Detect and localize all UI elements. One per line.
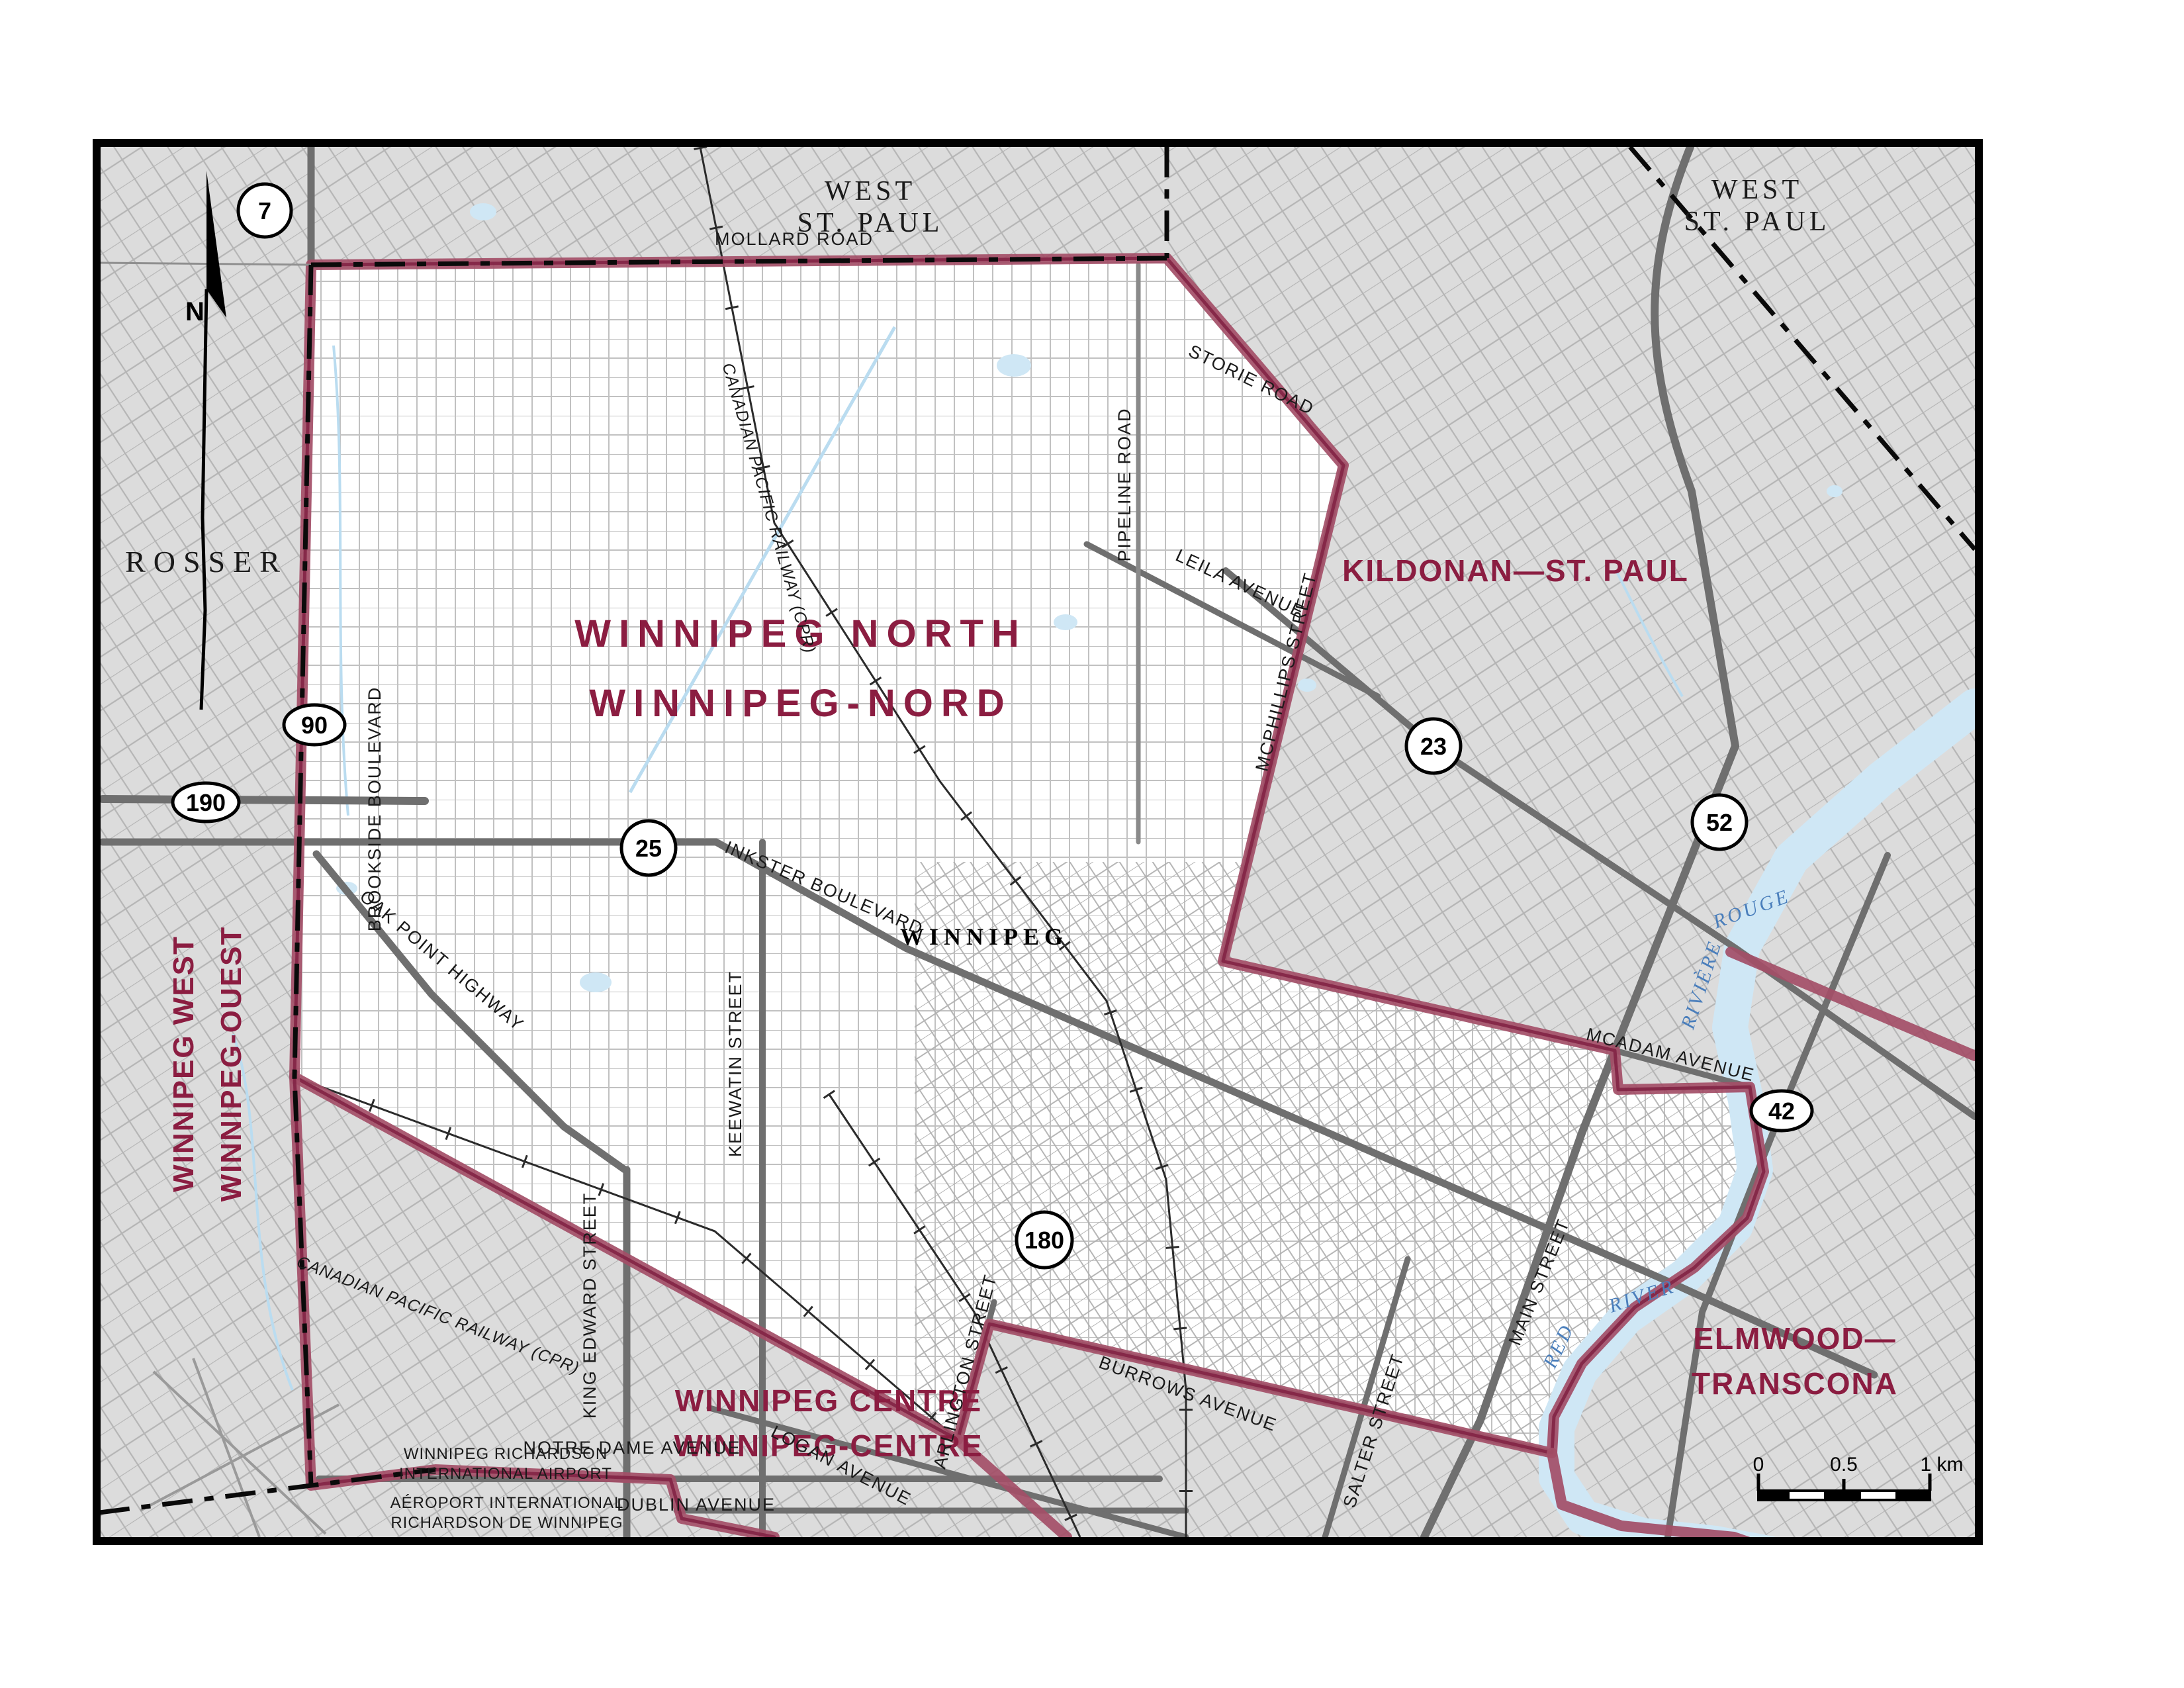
label-dublin-avenue: DUBLIN AVENUE [617, 1495, 776, 1515]
label-airport-en-1: WINNIPEG RICHARDSON [404, 1445, 608, 1463]
highway-shield-190: 190 [173, 783, 239, 821]
label-airport-fr-1: AÉROPORT INTERNATIONAL [390, 1494, 624, 1512]
map-canvas: WINNIPEG NORTH WINNIPEG-NORD WEST ST. PA… [101, 147, 1975, 1537]
scale-label-1km: 1 km [1920, 1454, 1963, 1476]
pond [1298, 679, 1316, 692]
shield-42-number: 42 [1768, 1098, 1795, 1125]
pond [1054, 614, 1077, 630]
highway-shield-23: 23 [1406, 719, 1461, 773]
highway-shield-25: 25 [621, 821, 676, 875]
scale-bar-body [1757, 1489, 1931, 1501]
pond [1827, 485, 1843, 497]
label-pipeline-road: PIPELINE ROAD [1115, 407, 1134, 561]
label-airport-en-2: INTERNATIONAL AIRPORT [399, 1465, 612, 1483]
highway-shield-42: 42 [1751, 1091, 1812, 1131]
highway-shield-52: 52 [1692, 795, 1747, 849]
shield-190-number: 190 [186, 789, 226, 816]
scale-label-0: 0 [1753, 1454, 1764, 1476]
district-title-fr: WINNIPEG-NORD [589, 682, 1012, 725]
shield-23-number: 23 [1420, 733, 1447, 760]
label-king-edward-street: KING EDWARD STREET [580, 1192, 600, 1419]
label-airport-fr-2: RICHARDSON DE WINNIPEG [390, 1514, 623, 1532]
label-kildonan-st-paul: KILDONAN—ST. PAUL [1342, 553, 1689, 588]
shield-52-number: 52 [1706, 809, 1733, 836]
north-arrow-letter: N [185, 297, 205, 326]
map-frame: WINNIPEG NORTH WINNIPEG-NORD WEST ST. PA… [93, 139, 1983, 1545]
label-keewatin-street: KEEWATIN STREET [725, 970, 745, 1157]
shield-180-number: 180 [1024, 1227, 1064, 1254]
highway-shield-7: 7 [238, 184, 291, 237]
scale-bar-white-2 [1861, 1492, 1895, 1499]
label-elmwood-2: TRANSCONA [1692, 1366, 1898, 1401]
label-west-st-paul-right-2: ST. PAUL [1684, 207, 1831, 237]
shield-25-number: 25 [635, 835, 662, 862]
pond [470, 203, 496, 220]
scale-label-05: 0.5 [1830, 1454, 1858, 1476]
label-city-winnipeg: WINNIPEG [900, 923, 1068, 950]
pond [580, 972, 612, 992]
label-winnipeg-west-en: WINNIPEG WEST [167, 935, 200, 1192]
map-page: WINNIPEG NORTH WINNIPEG-NORD WEST ST. PA… [0, 0, 2184, 1688]
label-west-st-paul-right-1: WEST [1711, 175, 1803, 205]
label-west-st-paul-left-1: WEST [825, 176, 916, 207]
highway-shield-90: 90 [284, 705, 345, 745]
label-mollard-road: MOLLARD ROAD [715, 229, 874, 249]
label-winnipeg-centre-en: WINNIPEG CENTRE [675, 1383, 982, 1418]
highway-shield-180: 180 [1017, 1212, 1072, 1268]
shield-90-number: 90 [301, 712, 328, 739]
scale-bar-white-1 [1790, 1492, 1824, 1499]
label-rosser: ROSSER [125, 545, 288, 579]
pond [997, 354, 1031, 377]
shield-7-number: 7 [258, 197, 271, 224]
label-winnipeg-west-fr: WINNIPEG-OUEST [215, 926, 248, 1202]
label-elmwood-1: ELMWOOD— [1693, 1321, 1896, 1356]
